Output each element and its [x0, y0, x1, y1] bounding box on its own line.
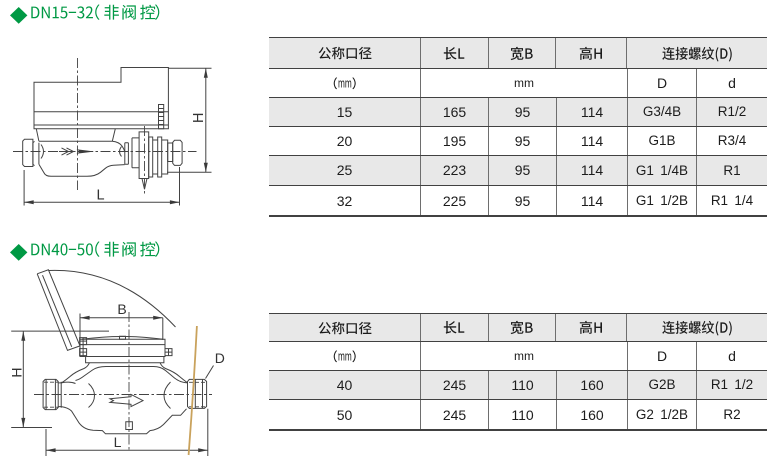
svg-text:mm: mm [338, 77, 352, 91]
svg-text:L: L [96, 188, 104, 204]
svg-text:H: H [9, 367, 25, 377]
svg-text:L: L [114, 434, 122, 450]
svg-text:mm: mm [338, 350, 352, 364]
svg-text:B: B [117, 301, 126, 317]
svg-text:D: D [215, 350, 225, 366]
svg-text:H: H [191, 112, 207, 122]
